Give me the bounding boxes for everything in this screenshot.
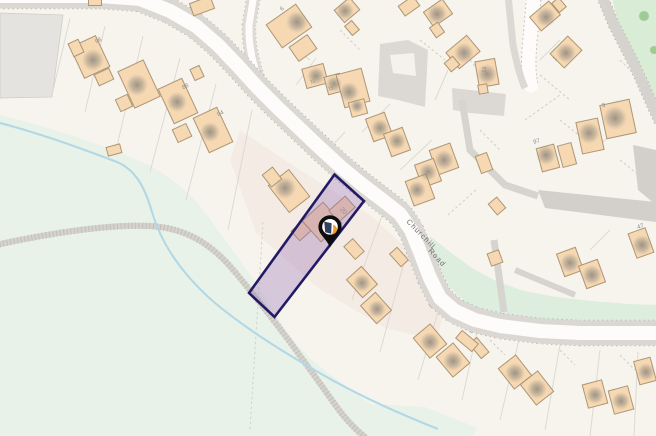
svg-text:14: 14 [482, 66, 489, 73]
